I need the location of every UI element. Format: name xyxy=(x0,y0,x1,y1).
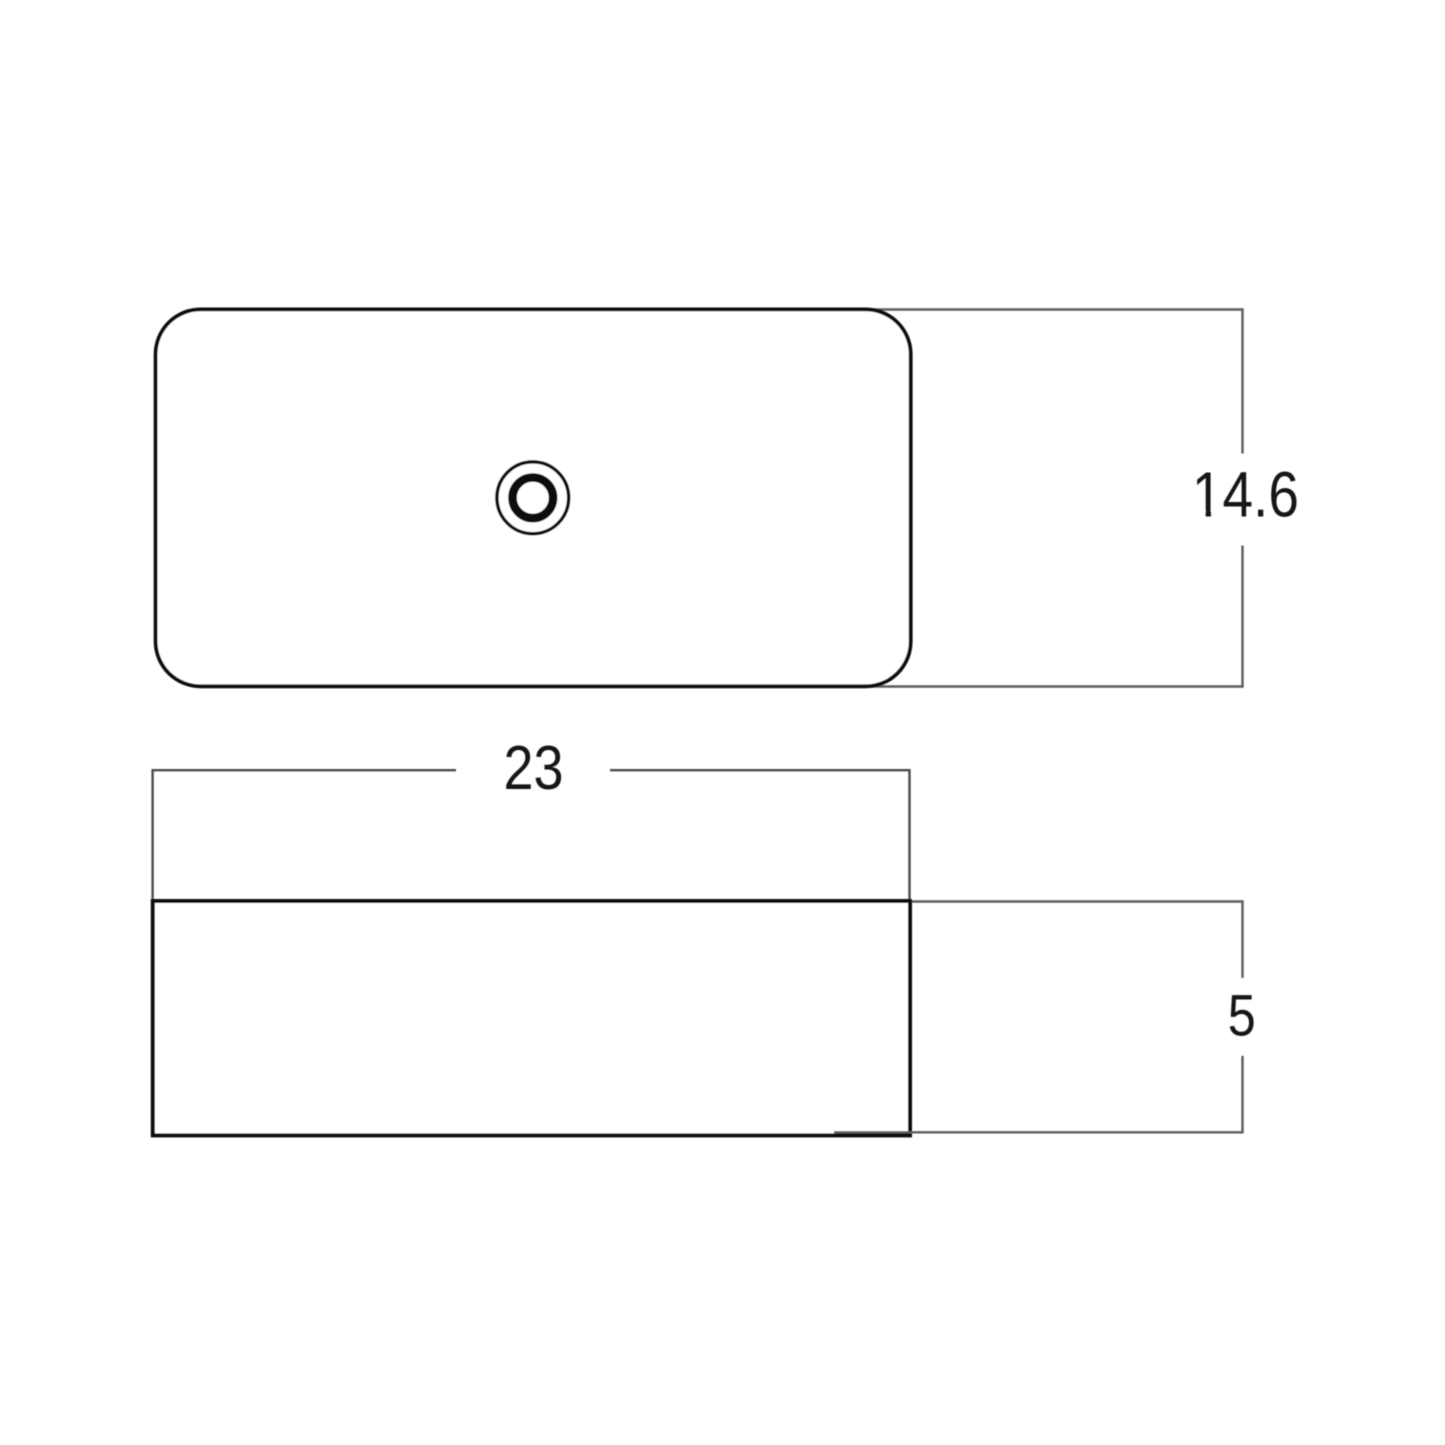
svg-text:23: 23 xyxy=(504,734,564,803)
svg-text:5: 5 xyxy=(1228,984,1256,1049)
svg-text:14.6: 14.6 xyxy=(1192,459,1299,531)
